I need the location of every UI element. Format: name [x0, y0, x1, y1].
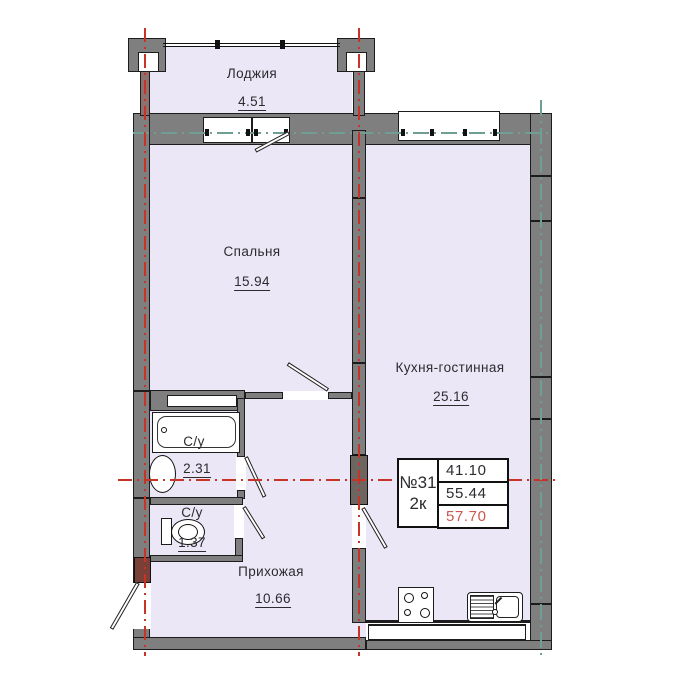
- wc-label: С/у: [181, 505, 202, 520]
- bedroom-label: Спальня: [223, 244, 280, 259]
- bathroom-label: С/у: [183, 434, 204, 449]
- info-table-value-row-3: 57.70: [437, 504, 509, 529]
- hallway-area: 10.66: [255, 591, 291, 606]
- kitchen-sink-faucet: [492, 609, 498, 615]
- axis-line-red-vertical-mid: [358, 28, 360, 656]
- info-table-value-row-1: 41.10: [437, 458, 509, 483]
- glazing-axis-horizontal: [133, 132, 552, 134]
- window-mullion: [493, 129, 497, 136]
- loggia-glazing-mullion: [280, 40, 285, 49]
- window-mullion: [254, 129, 258, 136]
- kitchen-floor: [366, 145, 530, 620]
- wall-bedroom-bottom-stub: [328, 392, 352, 399]
- kitchen-window: [398, 111, 500, 141]
- area-value-1: 41.10: [439, 462, 487, 479]
- wall-wc-bottom: [150, 555, 243, 562]
- loggia-glazing-mullion: [215, 40, 220, 49]
- hallway-label: Прихожая: [238, 564, 304, 579]
- bedroom-area: 15.94: [234, 274, 270, 289]
- entrance-jamb-block: [134, 557, 151, 583]
- bathroom-area: 2.31: [183, 461, 211, 476]
- window-mullion: [401, 129, 405, 136]
- stove-burner: [420, 608, 430, 618]
- loggia-column-right-notch: [346, 52, 367, 72]
- kitchen-label: Кухня-гостинная: [396, 360, 505, 375]
- apartment-number: №31: [399, 472, 436, 493]
- wall-bath-divider: [150, 497, 243, 505]
- loggia-area: 4.51: [238, 94, 266, 109]
- wall-joint: [133, 497, 150, 499]
- area-value-2: 55.44: [439, 485, 487, 502]
- kitchen-area: 25.16: [433, 389, 469, 404]
- loggia-column-left-notch: [138, 52, 159, 72]
- wall-bottom-hallway: [133, 637, 366, 650]
- floor-plan: №31 2к 41.10 55.44 57.70 Лоджия 4.51 Спа…: [0, 0, 684, 684]
- stove: [398, 587, 434, 623]
- rooms-count: 2к: [410, 493, 427, 514]
- washbasin: [149, 455, 176, 493]
- info-table-head-cell: №31 2к: [397, 458, 439, 528]
- stove-burner: [404, 593, 414, 603]
- wall-bedroom-bottom: [245, 392, 283, 399]
- kitchen-sink-drainer: [470, 595, 494, 619]
- axis-line-teal-vertical-right: [540, 100, 542, 658]
- info-table-value-row-2: 55.44: [437, 481, 509, 506]
- wall-bottom-kitchen: [366, 640, 552, 650]
- bedroom-door-opening: [283, 391, 328, 400]
- stove-burner: [404, 609, 411, 616]
- window-mullion: [205, 129, 209, 136]
- wc-area: 1.37: [178, 535, 206, 550]
- bathroom-door-opening: [236, 457, 246, 490]
- bedroom-floor: [150, 145, 352, 392]
- loggia-glazing-front: [163, 43, 340, 47]
- axis-line-red-vertical-left: [144, 28, 146, 656]
- stove-burner: [421, 592, 428, 599]
- window-mullion: [463, 129, 467, 136]
- area-value-total: 57.70: [439, 508, 487, 525]
- loggia-label: Лоджия: [227, 66, 277, 81]
- window-mullion: [430, 129, 434, 136]
- balcony-window-divider: [251, 117, 253, 143]
- wall-joint: [133, 390, 150, 392]
- window-mullion: [246, 129, 250, 136]
- bathroom-duct-niche: [167, 395, 237, 407]
- bathtub-drain: [161, 427, 167, 433]
- kitchen-window-bottom: [368, 624, 526, 640]
